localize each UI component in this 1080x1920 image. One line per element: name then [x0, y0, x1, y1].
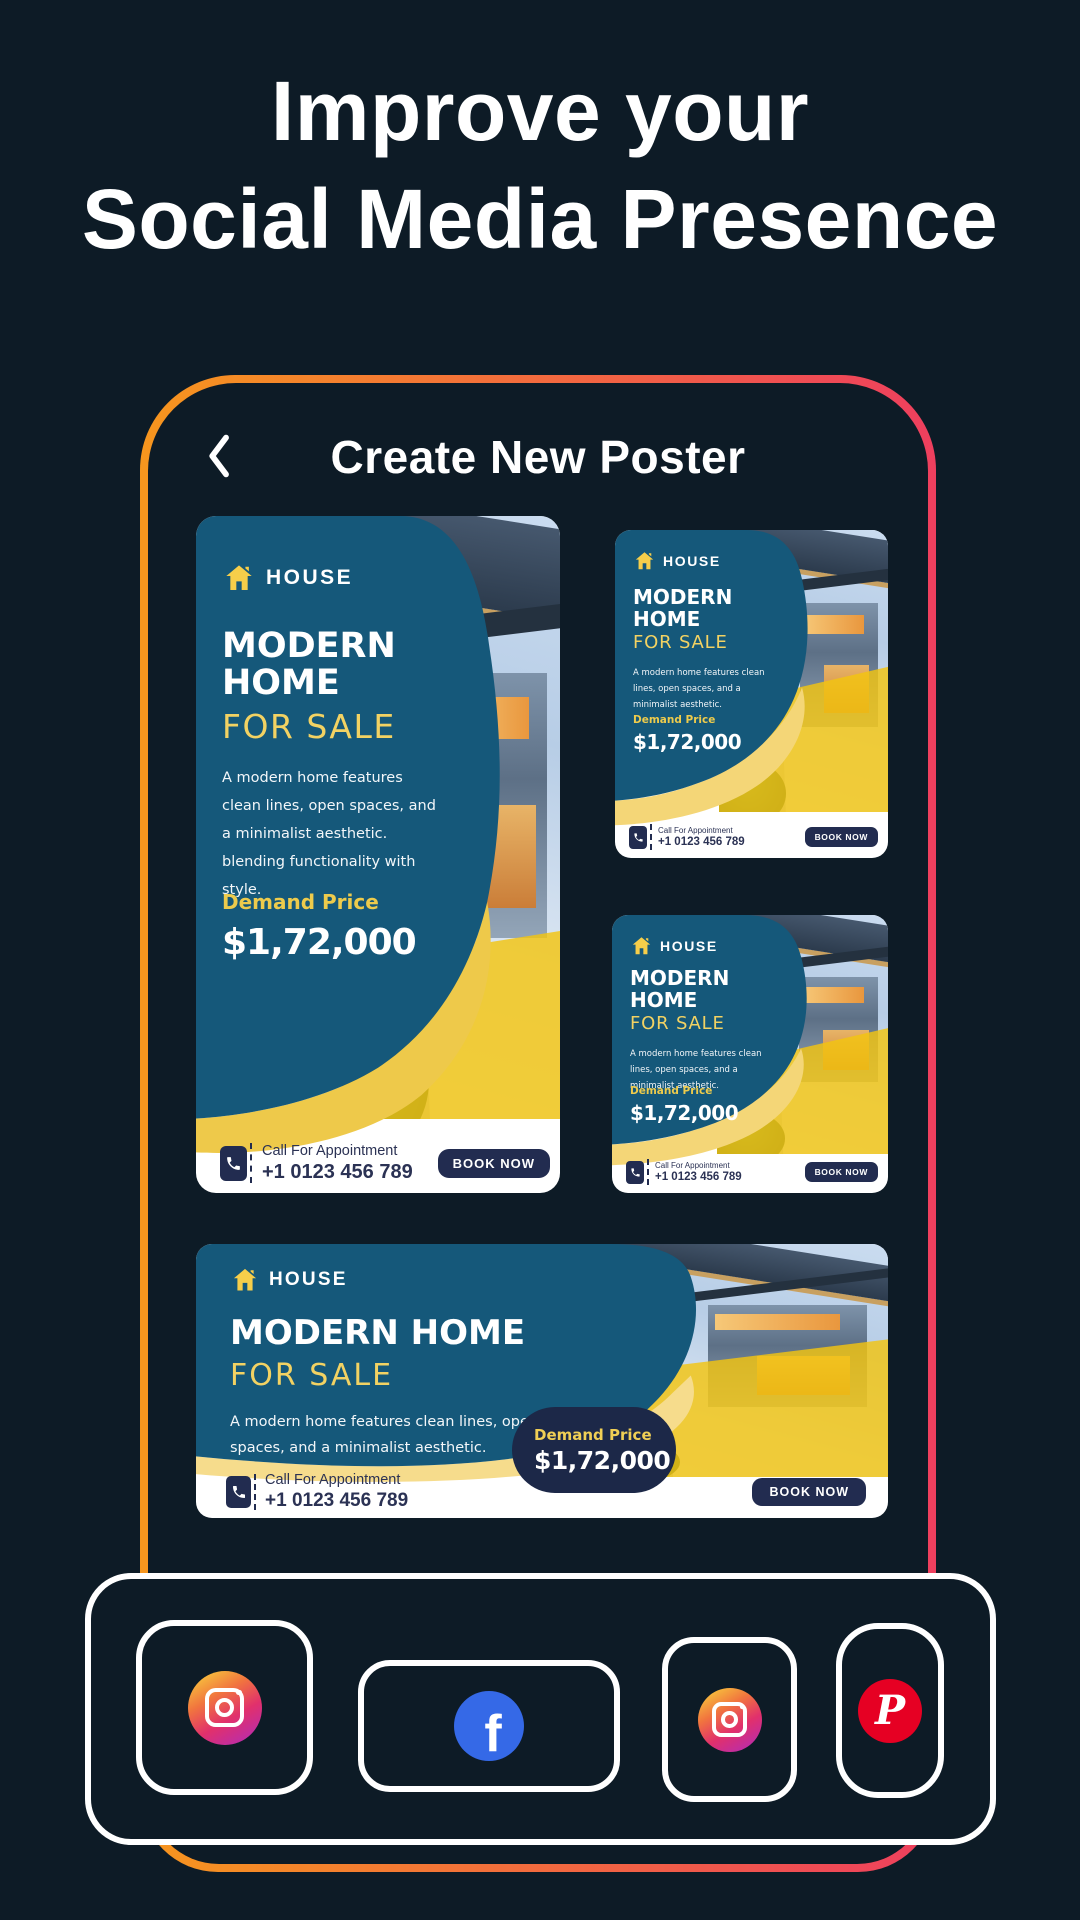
poster-title-line1: MODERN	[630, 967, 790, 989]
instagram-lens	[721, 1711, 738, 1728]
book-now-button: BOOK NOW	[438, 1149, 550, 1178]
poster-text: MODERN HOME FOR SALE A modern home featu…	[633, 586, 793, 713]
price-block: Demand Price $1,72,000	[630, 1085, 738, 1125]
poster-template-square-1[interactable]: HOUSE MODERN HOME FOR SALE A modern home…	[615, 530, 888, 858]
brand-logo: HOUSE	[630, 935, 718, 957]
contact-bar: Call For Appointment +1 0123 456 789 BOO…	[626, 1157, 878, 1187]
house-icon	[230, 1266, 260, 1294]
brand-name: HOUSE	[660, 938, 718, 954]
hero-title-line1: Improve your	[0, 58, 1080, 166]
house-icon	[222, 562, 256, 594]
house-icon	[633, 550, 656, 572]
instagram-dot	[236, 1690, 241, 1695]
book-now-button: BOOK NOW	[805, 1162, 878, 1182]
poster-title-line2: HOME	[630, 989, 790, 1011]
hero-title: Improve your Social Media Presence	[0, 58, 1080, 273]
pinterest-p-glyph: P	[875, 1687, 905, 1734]
phone-icon	[226, 1476, 251, 1508]
book-now-button: BOOK NOW	[805, 827, 878, 847]
brand-logo: HOUSE	[633, 550, 721, 572]
contact-text: Call For Appointment +1 0123 456 789	[658, 826, 745, 848]
price-value: $1,72,000	[630, 1101, 738, 1125]
call-label: Call For Appointment	[265, 1472, 408, 1488]
price-value: $1,72,000	[222, 922, 416, 963]
poster-title-line1: MODERN	[222, 628, 452, 665]
brand-logo: HOUSE	[222, 562, 353, 594]
instagram-icon	[698, 1688, 762, 1752]
hero-title-line2: Social Media Presence	[0, 166, 1080, 274]
poster-text: MODERN HOME FOR SALE A modern home featu…	[630, 967, 790, 1094]
price-label: Demand Price	[222, 890, 416, 914]
poster-template-landscape[interactable]: HOUSE MODERN HOME FOR SALE A modern home…	[196, 1244, 888, 1518]
phone-icon	[629, 826, 647, 849]
price-value: $1,72,000	[534, 1446, 676, 1475]
social-item-facebook-post[interactable]: f	[358, 1660, 620, 1792]
poster-subtitle: FOR SALE	[630, 1013, 790, 1034]
social-item-pinterest-pin[interactable]: P	[836, 1623, 944, 1798]
contact-text: Call For Appointment +1 0123 456 789	[265, 1472, 408, 1512]
contact-bar: Call For Appointment +1 0123 456 789 BOO…	[226, 1472, 866, 1512]
contact-text: Call For Appointment +1 0123 456 789	[655, 1161, 742, 1183]
social-item-instagram-story[interactable]	[136, 1620, 313, 1795]
poster-subtitle: FOR SALE	[222, 707, 452, 746]
brand-name: HOUSE	[663, 553, 721, 569]
price-label: Demand Price	[633, 714, 741, 726]
brand-logo: HOUSE	[230, 1266, 348, 1294]
contact-bar: Call For Appointment +1 0123 456 789 BOO…	[220, 1141, 550, 1185]
price-label: Demand Price	[630, 1085, 738, 1097]
instagram-icon	[188, 1671, 262, 1745]
price-block: Demand Price $1,72,000	[222, 890, 416, 963]
phone-number: +1 0123 456 789	[265, 1490, 408, 1512]
divider	[650, 824, 652, 850]
poster-text: MODERN HOME FOR SALE A modern home featu…	[222, 628, 452, 904]
brand-name: HOUSE	[266, 566, 353, 590]
app-screen: Improve your Social Media Presence Creat…	[0, 0, 1080, 1920]
screen-title: Create New Poster	[140, 430, 936, 484]
divider	[647, 1159, 649, 1185]
social-platforms-bar: f P	[85, 1573, 996, 1845]
poster-subtitle: FOR SALE	[230, 1358, 670, 1393]
poster-title-line2: HOME	[222, 665, 452, 702]
brand-name: HOUSE	[269, 1269, 348, 1291]
poster-title-line1: MODERN	[633, 586, 793, 608]
price-value: $1,72,000	[633, 730, 741, 754]
divider	[250, 1143, 252, 1183]
phone-number: +1 0123 456 789	[655, 1171, 742, 1183]
divider	[254, 1474, 256, 1510]
pinterest-icon: P	[858, 1679, 922, 1743]
instagram-dot	[740, 1704, 744, 1708]
poster-description: A modern home features clean lines, open…	[222, 764, 436, 904]
poster-title: MODERN HOME	[230, 1314, 670, 1352]
price-block: Demand Price $1,72,000	[633, 714, 741, 754]
poster-template-portrait[interactable]: HOUSE MODERN HOME FOR SALE A modern home…	[196, 516, 560, 1193]
contact-text: Call For Appointment +1 0123 456 789	[262, 1143, 413, 1184]
call-label: Call For Appointment	[658, 826, 745, 835]
poster-subtitle: FOR SALE	[633, 632, 793, 653]
social-item-instagram-post[interactable]	[662, 1637, 797, 1802]
phone-number: +1 0123 456 789	[262, 1161, 413, 1184]
poster-template-square-2[interactable]: HOUSE MODERN HOME FOR SALE A modern home…	[612, 915, 888, 1193]
call-label: Call For Appointment	[655, 1161, 742, 1170]
phone-icon	[626, 1161, 644, 1184]
call-label: Call For Appointment	[262, 1143, 413, 1159]
contact-bar: Call For Appointment +1 0123 456 789 BOO…	[629, 822, 878, 852]
price-label: Demand Price	[534, 1426, 676, 1444]
facebook-f-glyph: f	[484, 1707, 501, 1761]
poster-description: A modern home features clean lines, open…	[633, 665, 773, 713]
phone-icon	[220, 1146, 247, 1181]
book-now-button: BOOK NOW	[752, 1478, 866, 1506]
phone-number: +1 0123 456 789	[658, 836, 745, 848]
facebook-icon: f	[454, 1691, 524, 1761]
poster-title-line2: HOME	[633, 608, 793, 630]
house-icon	[630, 935, 653, 957]
